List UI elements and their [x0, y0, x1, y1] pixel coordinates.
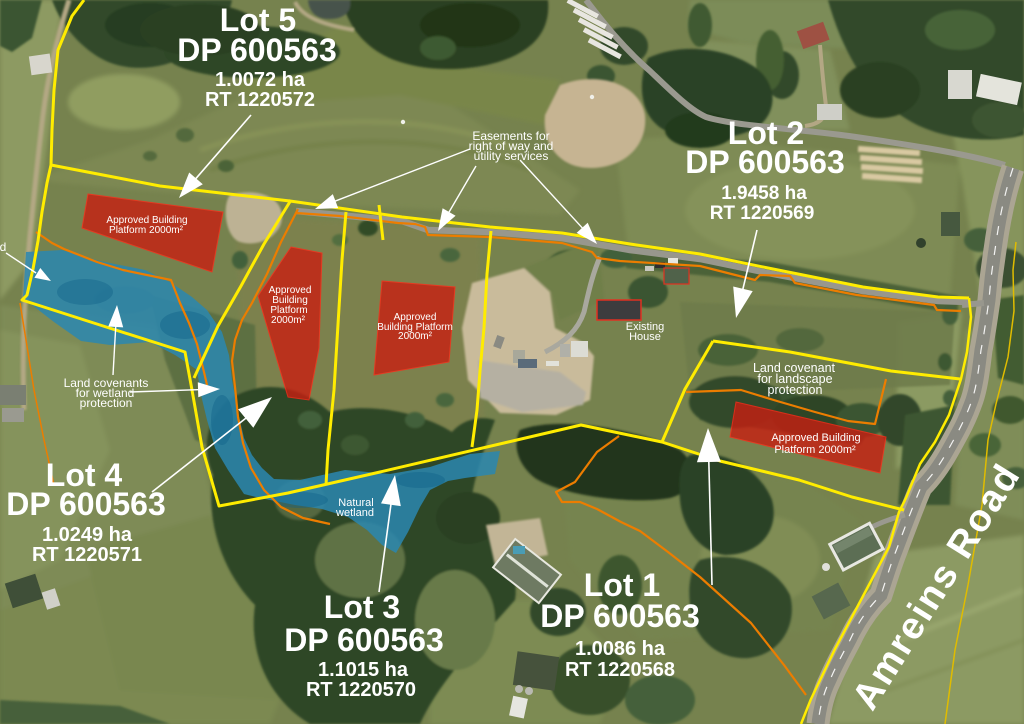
- svg-text:d: d: [0, 240, 6, 254]
- svg-text:DP 600563: DP 600563: [177, 32, 337, 68]
- svg-text:RT 1220572: RT 1220572: [205, 89, 315, 111]
- svg-text:2000m²: 2000m²: [271, 315, 306, 326]
- svg-text:RT 1220569: RT 1220569: [710, 203, 815, 224]
- svg-text:House: House: [629, 331, 661, 343]
- svg-text:RT 1220568: RT 1220568: [565, 659, 675, 681]
- svg-text:Approved Building: Approved Building: [771, 432, 860, 444]
- svg-text:1.0249 ha: 1.0249 ha: [42, 524, 133, 546]
- svg-text:Platform 2000m²: Platform 2000m²: [109, 225, 184, 236]
- svg-text:DP 600563: DP 600563: [685, 144, 845, 180]
- svg-text:DP 600563: DP 600563: [284, 622, 444, 658]
- svg-text:1.1015 ha: 1.1015 ha: [318, 659, 409, 681]
- svg-text:Lot 3: Lot 3: [324, 589, 400, 625]
- svg-text:DP 600563: DP 600563: [540, 598, 700, 634]
- svg-text:1.0086 ha: 1.0086 ha: [575, 638, 666, 660]
- svg-text:wetland: wetland: [335, 507, 374, 519]
- svg-text:1.0072 ha: 1.0072 ha: [215, 69, 306, 91]
- svg-text:Platform 2000m²: Platform 2000m²: [774, 444, 856, 456]
- svg-text:protection: protection: [80, 396, 133, 410]
- svg-text:RT 1220570: RT 1220570: [306, 679, 416, 701]
- svg-text:2000m²: 2000m²: [398, 331, 433, 342]
- svg-text:DP 600563: DP 600563: [6, 486, 166, 522]
- svg-text:protection: protection: [768, 383, 823, 397]
- svg-text:RT 1220571: RT 1220571: [32, 544, 142, 566]
- svg-text:utility services: utility services: [474, 149, 549, 163]
- svg-text:1.9458 ha: 1.9458 ha: [721, 183, 807, 204]
